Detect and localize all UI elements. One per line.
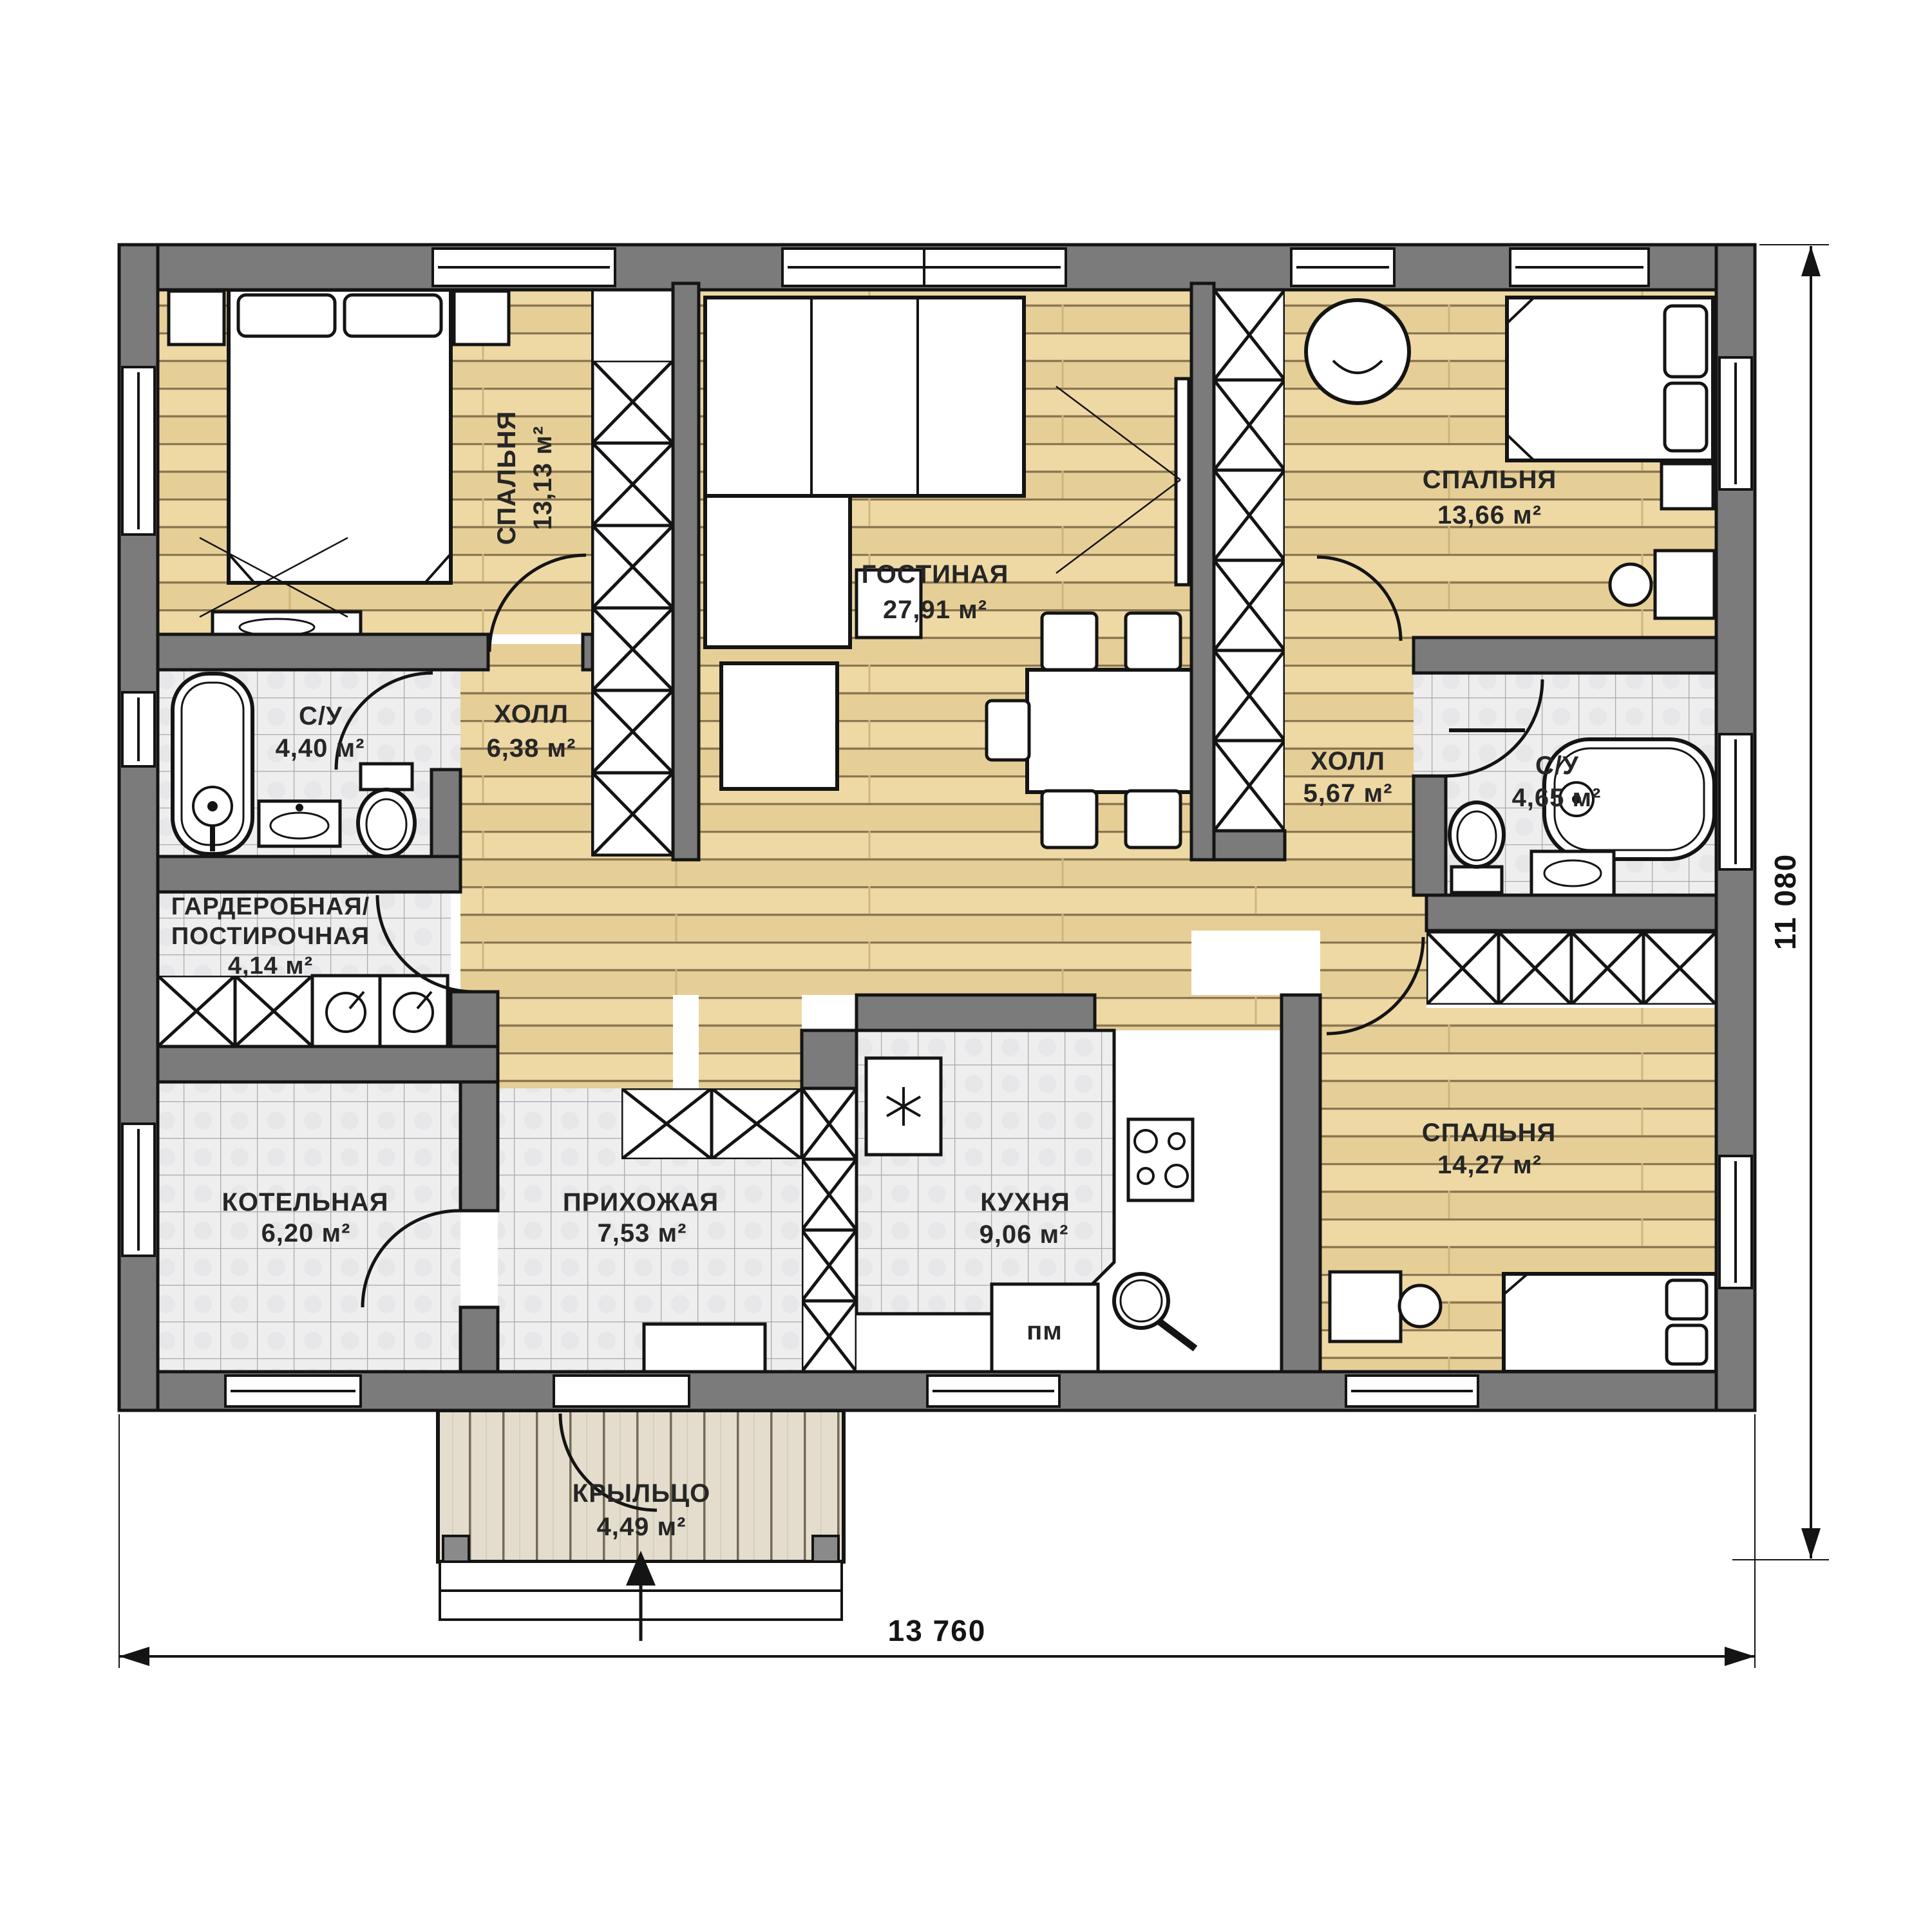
label-boiler-name: КОТЕЛЬНАЯ: [222, 1188, 389, 1217]
wall-living-left: [673, 283, 699, 860]
wall-kitchen-north: [857, 995, 1095, 1030]
nightstand-icon: [454, 291, 509, 345]
dimension-arrow: [1725, 1647, 1755, 1666]
floor-corridor-south: [699, 995, 802, 1088]
bed-icon: [1507, 298, 1713, 460]
window: [1719, 1156, 1752, 1288]
window: [122, 367, 155, 535]
label-entry-area: 7,53 м²: [598, 1219, 687, 1247]
label-living-name: ГОСТИНАЯ: [862, 560, 1009, 589]
window: [122, 1124, 155, 1256]
label-bath1-name: С/У: [299, 702, 343, 730]
floor-corridor: [673, 860, 1191, 995]
wall-bath1-south: [158, 857, 460, 892]
window: [122, 692, 155, 766]
window: [1719, 357, 1752, 489]
window: [927, 1376, 1059, 1406]
label-kitchen-area: 9,06 м²: [980, 1220, 1069, 1249]
dimension-width-label: 13 760: [888, 1614, 987, 1647]
window: [1346, 1376, 1478, 1406]
fridge-icon: [866, 1058, 941, 1155]
floor-kitchen-entry: [1095, 995, 1282, 1030]
wall-bedroom1-south-end: [583, 634, 592, 670]
washer-icon: [312, 976, 380, 1046]
label-bath2-name: С/У: [1535, 752, 1579, 780]
bed-icon: [1504, 1274, 1716, 1372]
label-wardrobe-name1: ГАРДЕРОБНАЯ/: [171, 893, 370, 920]
label-hall2-name: ХОЛЛ: [1311, 747, 1385, 775]
label-porch-name: КРЫЛЬЦО: [573, 1479, 710, 1508]
entry-door-opening: [554, 1376, 689, 1406]
floor-plan-page: СПАЛЬНЯ 13,13 м² ГОСТИНАЯ 27,91 м² СПАЛЬ…: [0, 0, 1932, 1932]
label-wardrobe-area: 4,14 м²: [228, 952, 313, 980]
dimension-arrow: [119, 1647, 149, 1666]
wall-boiler-right-upper: [460, 1082, 498, 1211]
dimension-height-label: 11 080: [1768, 853, 1802, 950]
label-dishwasher: пм: [1027, 1317, 1063, 1345]
window: [433, 249, 615, 286]
wall-bath2-south: [1426, 895, 1716, 931]
toilet-icon: [358, 764, 415, 857]
label-porch-area: 4,49 м²: [597, 1513, 687, 1541]
wall-bedroom1-south: [158, 634, 488, 670]
floor-plan-drawing: СПАЛЬНЯ 13,13 м² ГОСТИНАЯ 27,91 м² СПАЛЬ…: [0, 0, 1932, 1932]
double-bed-icon: [229, 290, 451, 583]
window: [1510, 249, 1649, 286]
label-bath2-area: 4,65 м²: [1512, 784, 1602, 812]
nightstand-icon: [1662, 464, 1713, 509]
floor-hall1-south: [498, 1046, 673, 1088]
room-area: 13,13 м²: [529, 426, 557, 530]
wall-bedroom2-south: [1414, 638, 1716, 673]
label-bedroom3-name: СПАЛЬНЯ: [1422, 1119, 1556, 1147]
coffee-table-icon: [721, 663, 837, 789]
label-hall1-area: 6,38 м²: [487, 734, 576, 762]
sink-icon: [1531, 851, 1614, 895]
wall-living-right: [1191, 283, 1214, 860]
label-entry-name: ПРИХОЖАЯ: [563, 1188, 719, 1217]
dimension-arrow: [1801, 1528, 1821, 1558]
porch-post: [813, 1536, 838, 1562]
label-bedroom3-area: 14,27 м²: [1437, 1151, 1542, 1179]
wall-boiler-right-lower: [460, 1307, 498, 1372]
wall-column-cap: [1214, 831, 1285, 860]
nightstand-icon: [169, 291, 224, 345]
wall-kitchen-right: [1282, 995, 1320, 1372]
porch-post: [443, 1536, 469, 1562]
stove-icon: [1128, 1119, 1193, 1200]
wall-boiler-north: [158, 1046, 498, 1082]
dimension-arrow: [1801, 246, 1821, 276]
label-bath1-area: 4,40 м²: [276, 734, 365, 762]
sink-icon: [259, 801, 340, 846]
label-bedroom2-name: СПАЛЬНЯ: [1423, 466, 1557, 494]
label-wardrobe-name2: ПОСТИРОЧНАЯ: [171, 923, 370, 950]
label-hall2-area: 5,67 м²: [1303, 779, 1393, 808]
label-boiler-area: 6,20 м²: [261, 1219, 351, 1247]
label-kitchen-name: КУХНЯ: [980, 1188, 1070, 1217]
round-chair-icon: [1306, 300, 1409, 403]
wall-entry-kitchen: [802, 1030, 857, 1088]
window: [1719, 734, 1752, 869]
window: [225, 1376, 361, 1406]
room-name: СПАЛЬНЯ: [493, 411, 521, 545]
wall-bath2-left: [1414, 776, 1446, 895]
toilet-icon: [1450, 802, 1504, 893]
wall-wardrobe-right: [451, 992, 498, 1046]
label-hall1-name: ХОЛЛ: [494, 700, 569, 728]
label-bedroom2-area: 13,66 м²: [1437, 501, 1542, 529]
window: [782, 249, 1066, 286]
label-living-area: 27,91 м²: [883, 596, 987, 624]
floor-corridor-right: [1191, 860, 1426, 931]
floor-bedroom3-door-zone: [1320, 931, 1426, 1008]
bathtub-icon: [173, 674, 252, 854]
entry-cabinet-icon: [644, 1324, 765, 1372]
window: [1291, 249, 1394, 286]
